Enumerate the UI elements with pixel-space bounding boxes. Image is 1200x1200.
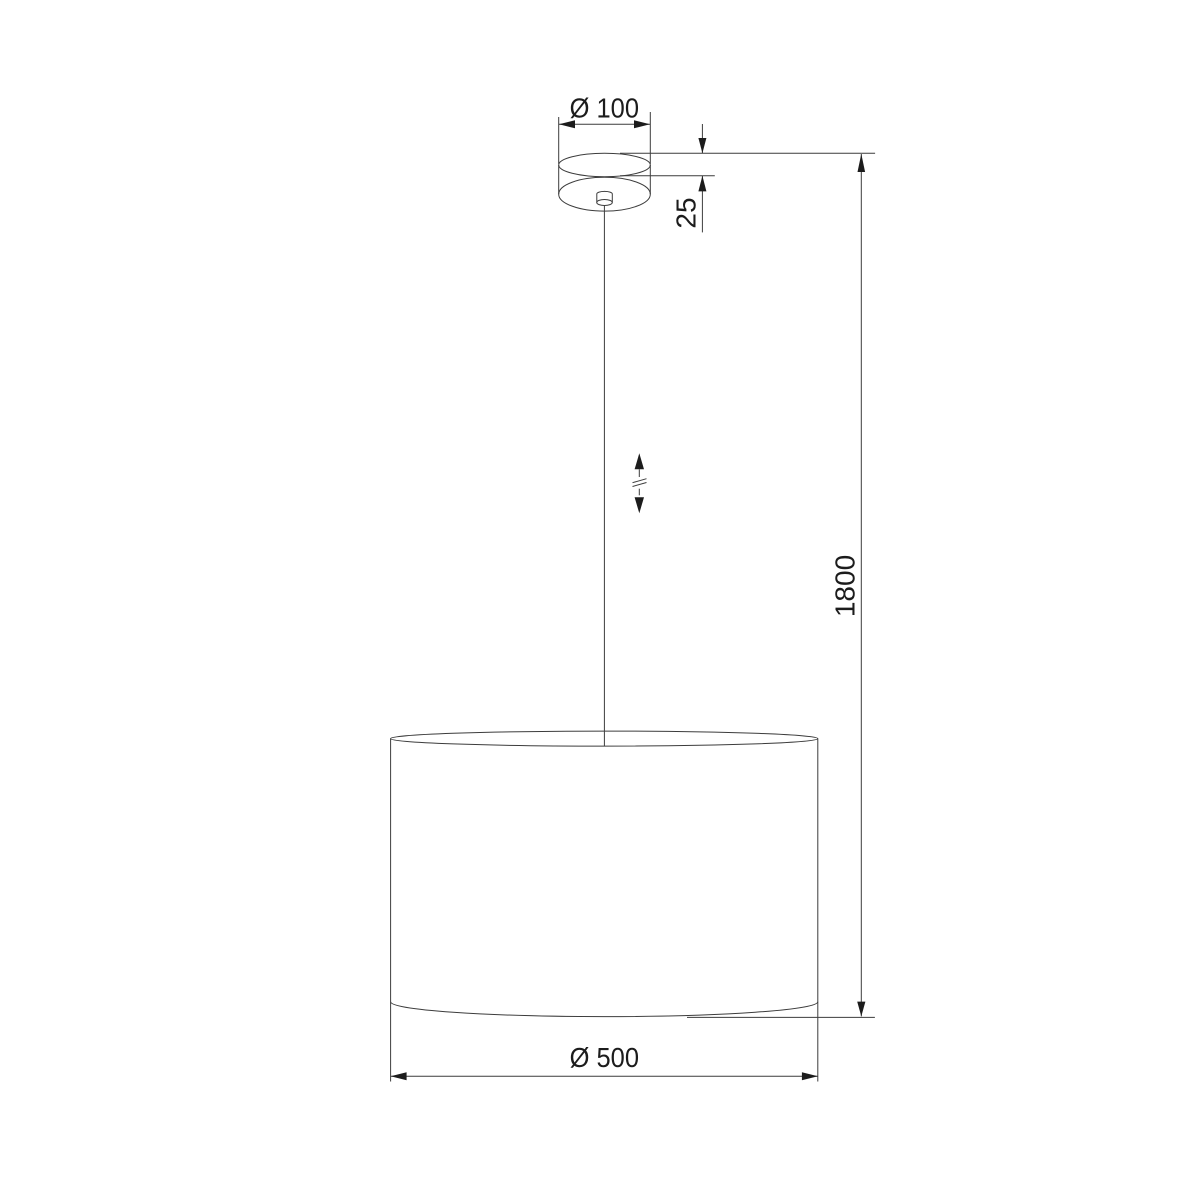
svg-text:Ø 500: Ø 500	[570, 1042, 639, 1073]
svg-text:Ø 100: Ø 100	[570, 92, 639, 123]
svg-text:25: 25	[671, 197, 702, 228]
svg-text:1800: 1800	[829, 555, 860, 617]
